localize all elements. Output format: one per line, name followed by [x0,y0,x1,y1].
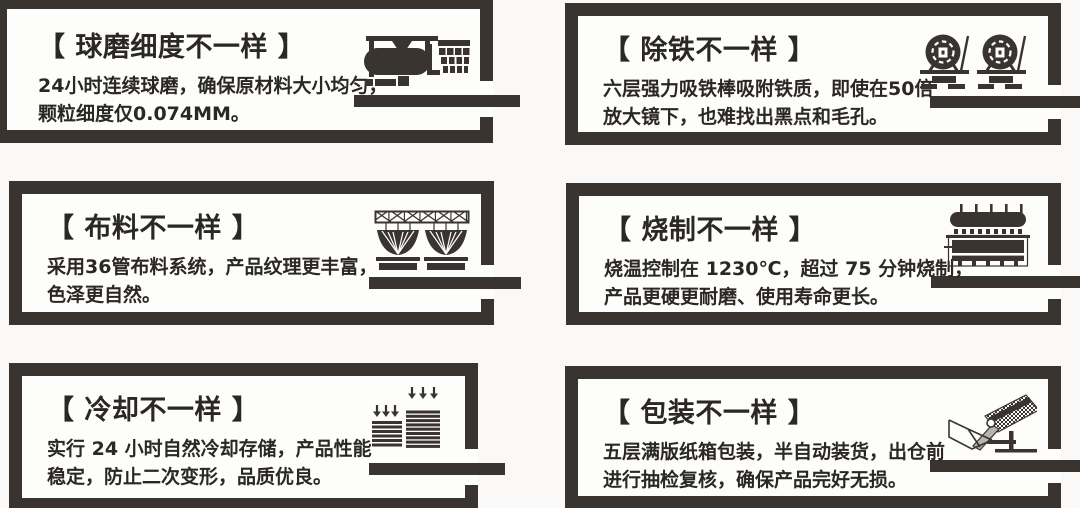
iron-remover-icon [920,31,1030,89]
panel-frame-left [566,183,579,325]
feature-panel-material-distribution: 【 布料不一样 】 采用36管布料系统，产品纹理更丰富， 色泽更自然。 [9,181,494,325]
panel-text-block: 【 除铁不一样 】 六层强力吸铁棒吸附铁质，即使在50倍 放大镜下，也难找出黑点… [603,28,933,131]
feature-panel-iron-removal: 【 除铁不一样 】 六层强力吸铁棒吸附铁质，即使在50倍 放大镜下，也难找出黑点… [565,3,1061,145]
infographic-canvas: 【 球磨细度不一样 】 24小时连续球磨，确保原材料大小均匀， 颗粒细度仅0.0… [0,0,1080,508]
panel-title: 【 布料不一样 】 [47,206,377,245]
panel-title: 【 冷却不一样 】 [47,388,372,427]
panel-text-block: 【 球磨细度不一样 】 24小时连续球磨，确保原材料大小均匀， 颗粒细度仅0.0… [38,25,387,128]
panel-frame-step [1048,483,1061,508]
panel-frame-step [1048,119,1061,145]
panel-frame-step [481,299,494,325]
panel-desc-line2: 放大镜下，也难找出黑点和毛孔。 [603,103,933,131]
feature-panel-cooling: 【 冷却不一样 】 实行 24 小时自然冷却存储，产品性能 稳定，防止二次变形，… [9,363,478,508]
panel-desc-line2: 稳定，防止二次变形，品质优良。 [47,463,372,491]
panel-frame-right [481,181,494,265]
panel-frame-bottom [566,312,1061,325]
panel-frame-top [0,0,493,9]
panel-text-block: 【 冷却不一样 】 实行 24 小时自然冷却存储，产品性能 稳定，防止二次变形，… [47,388,372,491]
panel-accent-bar [930,96,1080,108]
feature-panel-firing: 【 烧制不一样 】 烧温控制在 1230℃，超过 75 分钟烧制， 产品更硬更耐… [566,183,1061,325]
panel-title: 【 包装不一样 】 [603,391,945,430]
panel-desc-line2: 色泽更自然。 [47,281,377,309]
panel-frame-right [1048,3,1061,85]
cooling-stack-icon [372,384,444,450]
kiln-icon [944,204,1032,267]
panel-frame-top [9,363,478,376]
panel-frame-right [465,363,478,449]
panel-frame-right [1048,366,1061,449]
panel-desc-line1: 烧温控制在 1230℃，超过 75 分钟烧制， [604,255,973,283]
panel-title: 【 球磨细度不一样 】 [38,25,387,64]
panel-text-block: 【 布料不一样 】 采用36管布料系统，产品纹理更丰富， 色泽更自然。 [47,206,377,309]
panel-accent-bar [930,460,1080,472]
panel-text-block: 【 烧制不一样 】 烧温控制在 1230℃，超过 75 分钟烧制， 产品更硬更耐… [604,208,973,311]
panel-desc-line2: 进行抽检复核，确保产品完好无损。 [603,466,945,494]
panel-text-block: 【 包装不一样 】 五层满版纸箱包装，半自动装货，出仓前 进行抽检复核，确保产品… [603,391,945,494]
panel-frame-left [565,3,578,145]
panel-title: 【 烧制不一样 】 [604,208,973,247]
feature-panel-packaging: 【 包装不一样 】 五层满版纸箱包装，半自动装货，出仓前 进行抽检复核，确保产品… [565,366,1061,508]
panel-desc-line2: 颗粒细度仅0.074MM。 [38,100,387,128]
panel-accent-bar [369,463,505,475]
panel-desc-line1: 实行 24 小时自然冷却存储，产品性能 [47,435,372,463]
ball-mill-icon [364,32,470,94]
panel-desc-line1: 五层满版纸箱包装，半自动装货，出仓前 [603,438,945,466]
panel-frame-step [1048,299,1061,325]
panel-frame-right [480,0,493,81]
panel-desc-line1: 六层强力吸铁棒吸附铁质，即使在50倍 [603,75,933,103]
panel-frame-right [1048,183,1061,265]
panel-frame-bottom [565,496,1061,508]
panel-frame-step [465,485,478,508]
panel-frame-step [480,117,493,143]
panel-title: 【 除铁不一样 】 [603,28,933,67]
panel-frame-bottom [9,312,494,325]
panel-frame-left [9,363,22,508]
panel-frame-top [9,181,494,194]
panel-frame-bottom [0,130,493,143]
distribution-system-icon [374,210,470,270]
panel-desc-line1: 24小时连续球磨，确保原材料大小均匀， [38,72,387,100]
panel-frame-top [565,366,1061,379]
panel-frame-bottom [565,132,1061,145]
panel-frame-left [9,181,22,325]
feature-panel-ball-milling: 【 球磨细度不一样 】 24小时连续球磨，确保原材料大小均匀， 颗粒细度仅0.0… [0,0,493,143]
panel-desc-line2: 产品更硬更耐磨、使用寿命更长。 [604,283,973,311]
panel-accent-bar [369,277,521,289]
panel-frame-top [565,3,1061,16]
panel-frame-bottom [9,498,478,508]
panel-frame-top [566,183,1061,196]
packing-machine-icon [947,391,1037,453]
panel-frame-left [565,366,578,508]
panel-desc-line1: 采用36管布料系统，产品纹理更丰富， [47,253,377,281]
panel-frame-left [0,0,7,143]
